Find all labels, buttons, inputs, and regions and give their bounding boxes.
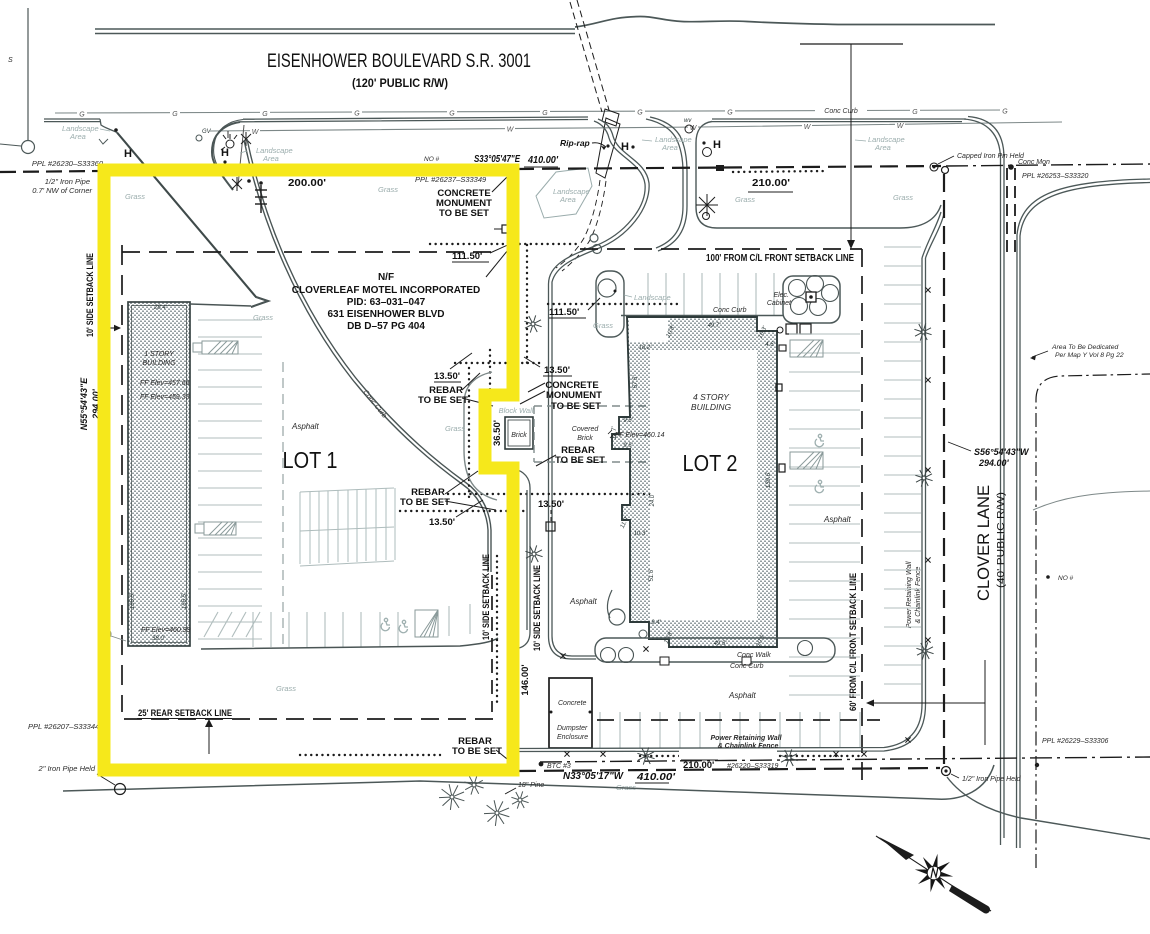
svg-text:S: S bbox=[8, 57, 13, 64]
svg-text:GV: GV bbox=[202, 129, 212, 135]
svg-text:165.5': 165.5' bbox=[182, 592, 188, 609]
svg-text:14.7': 14.7' bbox=[612, 426, 618, 440]
svg-text:25' REAR SETBACK LINE: 25' REAR SETBACK LINE bbox=[138, 708, 232, 719]
svg-text:G: G bbox=[354, 111, 360, 118]
svg-text:10' SIDE SETBACK LINE: 10' SIDE SETBACK LINE bbox=[532, 565, 543, 651]
svg-text:& Chainlink Fence: & Chainlink Fence bbox=[718, 743, 779, 750]
svg-text:G: G bbox=[912, 109, 918, 116]
svg-text:Grass: Grass bbox=[125, 192, 145, 201]
svg-text:Grass: Grass bbox=[445, 424, 465, 433]
svg-text:NO #: NO # bbox=[1058, 575, 1074, 582]
svg-text:49.7': 49.7' bbox=[708, 323, 722, 329]
svg-text:Block Wall: Block Wall bbox=[499, 406, 534, 415]
svg-text:13.50': 13.50' bbox=[538, 499, 564, 510]
svg-text:Landscape: Landscape bbox=[634, 293, 671, 302]
svg-text:BUILDING: BUILDING bbox=[142, 360, 176, 367]
svg-text:Conc Curb: Conc Curb bbox=[713, 307, 747, 314]
svg-text:TO BE SET: TO BE SET bbox=[400, 497, 450, 508]
svg-text:PID: 63–031–047: PID: 63–031–047 bbox=[347, 297, 426, 308]
svg-text:H: H bbox=[124, 148, 132, 160]
svg-text:13.50': 13.50' bbox=[544, 365, 570, 376]
svg-text:TO BE SET: TO BE SET bbox=[439, 208, 489, 219]
svg-text:S56°54'43"W: S56°54'43"W bbox=[974, 447, 1030, 457]
svg-text:631 EISENHOWER BLVD: 631 EISENHOWER BLVD bbox=[327, 309, 444, 320]
svg-text:Conc Curb: Conc Curb bbox=[730, 663, 764, 670]
svg-text:9.6': 9.6' bbox=[623, 418, 633, 424]
svg-text:Per Map Y Vol 8 Pg 22: Per Map Y Vol 8 Pg 22 bbox=[1055, 352, 1124, 359]
svg-text:H: H bbox=[621, 141, 629, 153]
svg-text:(40' PUBLIC R/W): (40' PUBLIC R/W) bbox=[995, 492, 1007, 588]
svg-text:200.00': 200.00' bbox=[288, 177, 326, 189]
svg-text:1 STORY: 1 STORY bbox=[144, 351, 175, 358]
svg-text:CLOVER LANE: CLOVER LANE bbox=[974, 485, 993, 601]
svg-text:Concrete: Concrete bbox=[558, 700, 587, 707]
svg-text:FF Elev=457.66: FF Elev=457.66 bbox=[140, 380, 190, 387]
svg-text:Asphalt: Asphalt bbox=[569, 597, 597, 606]
svg-text:Conc Walk: Conc Walk bbox=[737, 652, 771, 659]
svg-text:Brick: Brick bbox=[577, 435, 593, 442]
svg-text:LOT 2: LOT 2 bbox=[683, 450, 738, 476]
svg-text:G: G bbox=[1002, 109, 1008, 116]
svg-text:Enclosure: Enclosure bbox=[557, 734, 588, 741]
svg-text:EISENHOWER BOULEVARD S.R. 3001: EISENHOWER BOULEVARD S.R. 3001 bbox=[267, 51, 531, 72]
svg-text:10.3': 10.3' bbox=[634, 531, 648, 537]
svg-text:36.50': 36.50' bbox=[492, 420, 503, 446]
svg-text:LOT 1: LOT 1 bbox=[283, 447, 338, 473]
svg-text:TO BE SET: TO BE SET bbox=[418, 395, 468, 406]
svg-text:N33°05'17"W: N33°05'17"W bbox=[563, 771, 625, 782]
svg-text:Asphalt: Asphalt bbox=[291, 422, 319, 431]
svg-text:2" Iron Pipe Held: 2" Iron Pipe Held bbox=[38, 764, 96, 773]
svg-text:Brick: Brick bbox=[511, 432, 527, 439]
svg-text:Grass: Grass bbox=[276, 684, 296, 693]
svg-text:18.2': 18.2' bbox=[639, 345, 653, 351]
svg-text:294.00': 294.00' bbox=[978, 458, 1010, 468]
svg-text:& Chainlink Fence: & Chainlink Fence bbox=[915, 566, 922, 623]
svg-text:Power Retaining Wall: Power Retaining Wall bbox=[710, 735, 782, 742]
svg-text:Conc Curb: Conc Curb bbox=[824, 108, 858, 115]
svg-text:Power Retaining Wall: Power Retaining Wall bbox=[906, 561, 913, 628]
svg-text:Cabinet: Cabinet bbox=[767, 300, 792, 307]
svg-text:BTC #3: BTC #3 bbox=[547, 763, 571, 770]
svg-text:(120' PUBLIC R/W): (120' PUBLIC R/W) bbox=[352, 76, 448, 90]
svg-text:G: G bbox=[637, 110, 643, 117]
svg-text:Area: Area bbox=[874, 143, 891, 152]
svg-text:24.0': 24.0' bbox=[650, 493, 656, 508]
svg-text:57.5': 57.5' bbox=[633, 375, 639, 389]
svg-text:G: G bbox=[262, 111, 268, 118]
svg-text:Area: Area bbox=[69, 132, 86, 141]
svg-text:410.00': 410.00' bbox=[527, 155, 558, 166]
svg-text:N/F: N/F bbox=[378, 272, 394, 283]
svg-text:4 STORY: 4 STORY bbox=[693, 392, 730, 402]
svg-text:146.00': 146.00' bbox=[520, 664, 531, 695]
svg-text:S33°05'47"E: S33°05'47"E bbox=[474, 154, 520, 165]
svg-text:FF Elev=460.99: FF Elev=460.99 bbox=[141, 627, 191, 634]
svg-text:G: G bbox=[449, 110, 455, 117]
svg-text:wv: wv bbox=[684, 118, 692, 124]
svg-text:18" Pine: 18" Pine bbox=[518, 782, 544, 789]
svg-text:Elec.: Elec. bbox=[773, 292, 789, 299]
svg-text:28.4': 28.4' bbox=[153, 305, 168, 311]
svg-text:210.00': 210.00' bbox=[752, 177, 790, 189]
svg-text:13.50': 13.50' bbox=[429, 517, 455, 528]
svg-text:111.50': 111.50' bbox=[549, 307, 579, 318]
svg-text:38.0': 38.0' bbox=[152, 636, 166, 642]
svg-text:MONUMENT: MONUMENT bbox=[546, 390, 602, 401]
svg-text:TO BE SET: TO BE SET bbox=[452, 746, 502, 757]
svg-text:410.00': 410.00' bbox=[636, 772, 676, 783]
svg-text:49.5': 49.5' bbox=[714, 641, 728, 647]
svg-text:1/2" Iron Pipe Held: 1/2" Iron Pipe Held bbox=[962, 776, 1022, 783]
svg-text:210.00': 210.00' bbox=[683, 760, 714, 771]
svg-text:N55°54'43"E: N55°54'43"E bbox=[79, 377, 89, 431]
svg-text:139.6': 139.6' bbox=[766, 471, 772, 488]
svg-text:TO BE SET: TO BE SET bbox=[551, 401, 601, 412]
svg-text:Grass: Grass bbox=[735, 195, 755, 204]
svg-text:Dumpster: Dumpster bbox=[557, 725, 588, 732]
svg-text:H: H bbox=[713, 139, 721, 151]
svg-text:G: G bbox=[542, 110, 548, 117]
svg-text:PPL #26229–S33306: PPL #26229–S33306 bbox=[1042, 738, 1109, 745]
svg-text:9.4': 9.4' bbox=[651, 620, 661, 626]
svg-text:13.50': 13.50' bbox=[434, 371, 460, 382]
svg-text:BUILDING: BUILDING bbox=[691, 402, 732, 412]
svg-text:Area: Area bbox=[661, 143, 678, 152]
svg-text:PPL #26207–S33344: PPL #26207–S33344 bbox=[28, 722, 99, 731]
svg-text:#26220–S33319: #26220–S33319 bbox=[727, 763, 778, 770]
svg-text:NO #: NO # bbox=[424, 156, 440, 163]
svg-text:TO BE SET: TO BE SET bbox=[555, 455, 605, 466]
svg-text:4.6': 4.6' bbox=[765, 342, 775, 348]
svg-text:9.5': 9.5' bbox=[623, 443, 633, 449]
svg-text:CLOVERLEAF MOTEL INCORPORATED: CLOVERLEAF MOTEL INCORPORATED bbox=[292, 285, 481, 296]
svg-text:Asphalt: Asphalt bbox=[728, 691, 756, 700]
svg-text:Conc Mon: Conc Mon bbox=[1018, 159, 1050, 166]
svg-text:165.5': 165.5' bbox=[130, 592, 136, 609]
svg-text:10' SIDE SETBACK LINE: 10' SIDE SETBACK LINE bbox=[481, 554, 492, 640]
svg-text:1/2" Iron Pipe: 1/2" Iron Pipe bbox=[45, 177, 90, 186]
svg-text:Covered: Covered bbox=[572, 426, 600, 433]
svg-text:G: G bbox=[727, 109, 733, 116]
svg-text:DB D–57 PG 404: DB D–57 PG 404 bbox=[347, 321, 425, 332]
svg-text:Grass: Grass bbox=[253, 313, 273, 322]
svg-text:Grass: Grass bbox=[593, 321, 613, 330]
svg-text:G: G bbox=[172, 111, 178, 118]
svg-text:PPL #26253–S33320: PPL #26253–S33320 bbox=[1022, 173, 1089, 180]
svg-text:51.6': 51.6' bbox=[649, 568, 655, 582]
svg-text:60' FROM C/L FRONT SETBACK LIN: 60' FROM C/L FRONT SETBACK LINE bbox=[848, 573, 859, 711]
svg-text:G: G bbox=[79, 111, 85, 118]
svg-text:Asphalt: Asphalt bbox=[823, 515, 851, 524]
svg-text:Area: Area bbox=[559, 195, 576, 204]
svg-text:Area To Be Dedicated: Area To Be Dedicated bbox=[1051, 344, 1118, 351]
svg-text:10' SIDE SETBACK LINE: 10' SIDE SETBACK LINE bbox=[85, 253, 96, 337]
svg-text:Capped Iron Pin Held: Capped Iron Pin Held bbox=[957, 153, 1025, 160]
svg-text:PPL #26230–S33360: PPL #26230–S33360 bbox=[32, 159, 104, 168]
svg-text:Rip-rap: Rip-rap bbox=[560, 138, 590, 148]
svg-text:Grass: Grass bbox=[378, 185, 398, 194]
svg-text:0.7' NW of Corner: 0.7' NW of Corner bbox=[32, 186, 92, 195]
svg-text:FF Elev=459.33: FF Elev=459.33 bbox=[140, 394, 190, 401]
svg-text:FF Elev=460.14: FF Elev=460.14 bbox=[615, 432, 665, 439]
svg-text:Grass: Grass bbox=[893, 193, 913, 202]
svg-text:Area: Area bbox=[262, 154, 279, 163]
svg-text:111.50': 111.50' bbox=[452, 251, 482, 262]
svg-text:100' FROM C/L FRONT SETBACK LI: 100' FROM C/L FRONT SETBACK LINE bbox=[706, 253, 854, 264]
